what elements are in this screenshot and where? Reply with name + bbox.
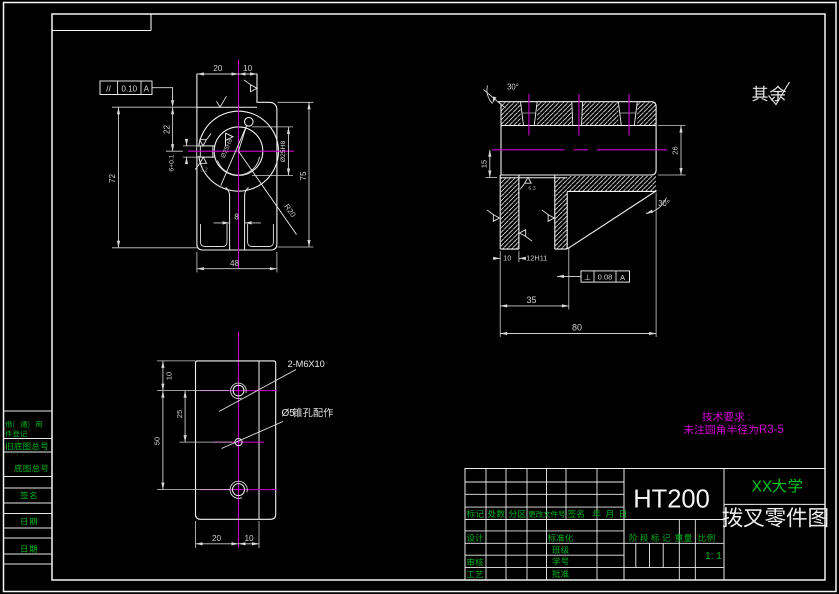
svg-text:30°: 30° (507, 83, 519, 92)
svg-text:20: 20 (213, 64, 223, 73)
svg-text:12H11: 12H11 (526, 254, 547, 263)
svg-text://: // (106, 84, 111, 94)
svg-text:30°: 30° (658, 199, 670, 208)
svg-text:8: 8 (234, 213, 239, 222)
svg-text:10: 10 (165, 372, 174, 380)
svg-text:0.10: 0.10 (122, 85, 138, 94)
svg-text:R3-5: R3-5 (759, 424, 784, 436)
svg-text:25: 25 (175, 410, 184, 418)
svg-text::: : (748, 412, 751, 424)
svg-text:⊥: ⊥ (584, 273, 591, 282)
svg-text:10: 10 (244, 534, 254, 543)
svg-text:A: A (144, 85, 150, 94)
svg-text:50: 50 (153, 437, 162, 445)
svg-text:3.2: 3.2 (200, 168, 208, 174)
svg-text:80: 80 (572, 323, 582, 333)
svg-text:6.3: 6.3 (528, 186, 535, 192)
svg-text:10: 10 (243, 64, 253, 73)
svg-text:48: 48 (230, 259, 240, 268)
svg-text:26: 26 (671, 146, 680, 154)
svg-text:75: 75 (299, 171, 308, 181)
svg-text:HT200: HT200 (633, 486, 710, 514)
svg-text:2-M6X10: 2-M6X10 (288, 359, 325, 369)
svg-text:10: 10 (503, 254, 511, 263)
svg-text:1: 1: 1: 1 (705, 551, 722, 562)
svg-text:20: 20 (212, 534, 222, 543)
svg-text:35: 35 (526, 295, 536, 305)
svg-text:Ø5: Ø5 (282, 408, 296, 419)
svg-text:6+0.1: 6+0.1 (169, 154, 176, 171)
svg-text:Ø25H8: Ø25H8 (280, 141, 287, 163)
svg-text:22: 22 (162, 125, 171, 135)
svg-text:72: 72 (108, 174, 117, 184)
svg-text:XX: XX (752, 479, 773, 496)
svg-text:15: 15 (480, 160, 489, 168)
svg-text:0.08: 0.08 (598, 273, 613, 282)
